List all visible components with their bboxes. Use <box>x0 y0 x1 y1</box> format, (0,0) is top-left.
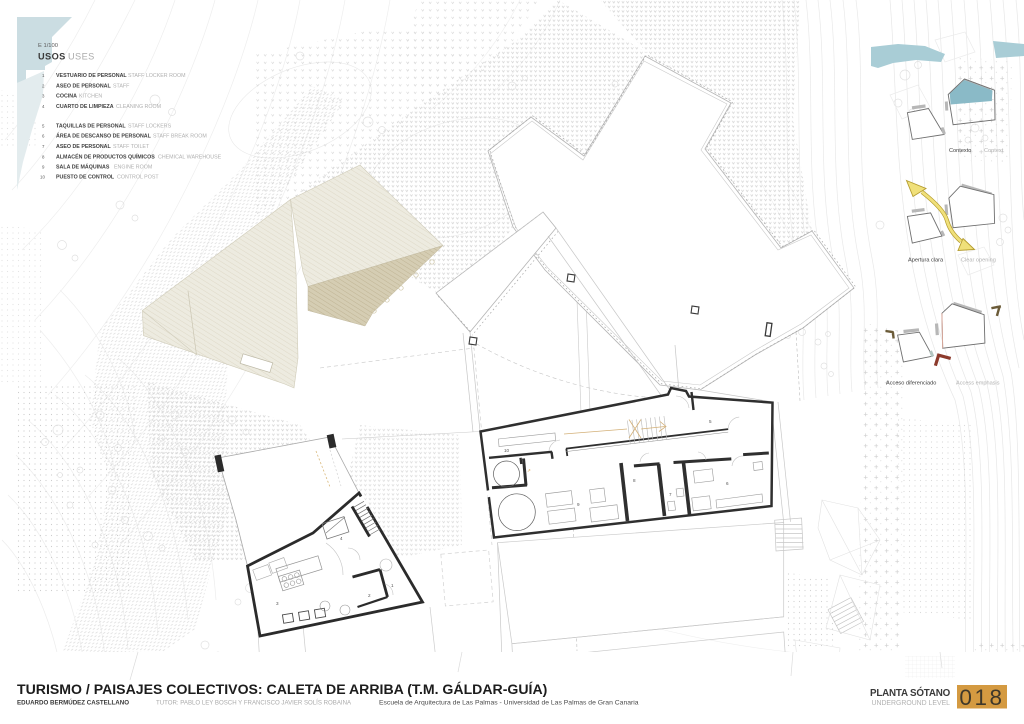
svg-text:ASEO DE PERSONAL: ASEO DE PERSONAL <box>56 144 112 150</box>
svg-text:EDUARDO BERMÚDEZ CASTELLANO: EDUARDO BERMÚDEZ CASTELLANO <box>17 700 129 707</box>
svg-text:STAFF LOCKER ROOM: STAFF LOCKER ROOM <box>128 73 186 79</box>
svg-text:USOS: USOS <box>38 52 66 62</box>
svg-text:10: 10 <box>40 175 45 180</box>
svg-text:CHEMICAL WAREHOUSE: CHEMICAL WAREHOUSE <box>158 155 222 161</box>
svg-text:SALA DE MÁQUINAS: SALA DE MÁQUINAS <box>56 164 110 171</box>
svg-text:ENGINE ROOM: ENGINE ROOM <box>114 165 152 171</box>
svg-text:1: 1 <box>391 583 394 588</box>
svg-text:STAFF LOCKERS: STAFF LOCKERS <box>128 124 172 130</box>
svg-text:KITCHEN: KITCHEN <box>79 94 102 100</box>
svg-text:↗: ↗ <box>527 468 531 473</box>
svg-text:5: 5 <box>709 419 712 424</box>
svg-text:Apertura clara: Apertura clara <box>908 258 944 264</box>
svg-text:Access emphasis: Access emphasis <box>956 381 1000 387</box>
svg-text:2: 2 <box>368 593 371 598</box>
svg-text:6: 6 <box>726 481 729 486</box>
svg-text:Context: Context <box>984 148 1004 154</box>
svg-text:ALMACÉN DE PRODUCTOS QUÍMICOS: ALMACÉN DE PRODUCTOS QUÍMICOS <box>56 153 155 161</box>
svg-text:10: 10 <box>504 448 510 453</box>
svg-text:UNDERGROUND LEVEL: UNDERGROUND LEVEL <box>872 700 951 707</box>
svg-text:STAFF BREAK ROOM: STAFF BREAK ROOM <box>153 134 207 140</box>
svg-text:STAFF TOILET: STAFF TOILET <box>113 144 150 150</box>
svg-text:CONTROL POST: CONTROL POST <box>117 175 159 181</box>
svg-text:STAFF: STAFF <box>113 84 130 90</box>
svg-text:Acceso diferenciado: Acceso diferenciado <box>886 381 936 387</box>
svg-text:ASEO DE PERSONAL: ASEO DE PERSONAL <box>56 84 112 90</box>
svg-text:COCINA: COCINA <box>56 94 77 100</box>
svg-text:3: 3 <box>276 601 279 606</box>
svg-text:CUARTO DE LIMPIEZA: CUARTO DE LIMPIEZA <box>56 104 114 110</box>
svg-text:8: 8 <box>633 478 636 483</box>
svg-text:Clear opening: Clear opening <box>961 258 996 264</box>
svg-text:TAQUILLAS DE PERSONAL: TAQUILLAS DE PERSONAL <box>56 124 126 130</box>
svg-text:7: 7 <box>669 492 672 497</box>
svg-text:Escuela de Arquitectura de Las: Escuela de Arquitectura de Las Palmas - … <box>379 700 639 707</box>
svg-text:9: 9 <box>577 502 580 507</box>
svg-text:PUESTO DE CONTROL: PUESTO DE CONTROL <box>56 175 115 181</box>
svg-text:PLANTA SÓTANO: PLANTA SÓTANO <box>870 687 951 699</box>
svg-text:ÁREA DE DESCANSO DE PERSONAL: ÁREA DE DESCANSO DE PERSONAL <box>56 133 152 140</box>
svg-text:E 1/100: E 1/100 <box>38 43 58 49</box>
svg-text:USES: USES <box>68 52 95 62</box>
svg-text:4: 4 <box>340 536 343 541</box>
svg-text:TURISMO / PAISAJES COLECTIVOS:: TURISMO / PAISAJES COLECTIVOS: CALETA DE… <box>17 681 547 697</box>
svg-text:TUTOR: PABLO LEY BOSCH Y FRANC: TUTOR: PABLO LEY BOSCH Y FRANCISCO JAVIE… <box>156 700 352 707</box>
svg-text:VESTUARIO DE PERSONAL: VESTUARIO DE PERSONAL <box>56 73 127 79</box>
svg-text:Contexto: Contexto <box>949 148 971 154</box>
svg-text:CLEANING ROOM: CLEANING ROOM <box>116 104 161 110</box>
svg-text:018: 018 <box>959 685 1004 710</box>
